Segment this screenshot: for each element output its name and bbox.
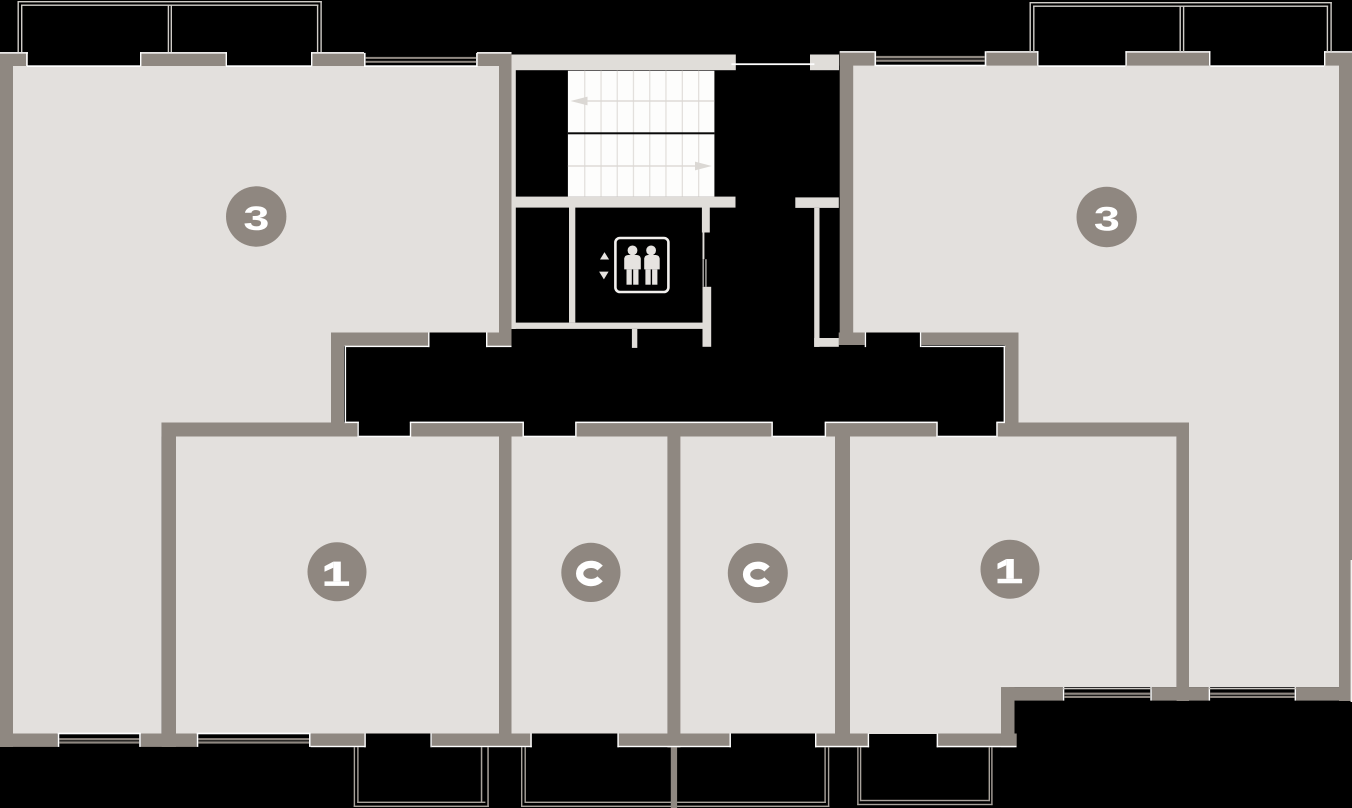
- svg-text:3: 3: [243, 200, 269, 238]
- svg-text:3: 3: [1094, 200, 1120, 238]
